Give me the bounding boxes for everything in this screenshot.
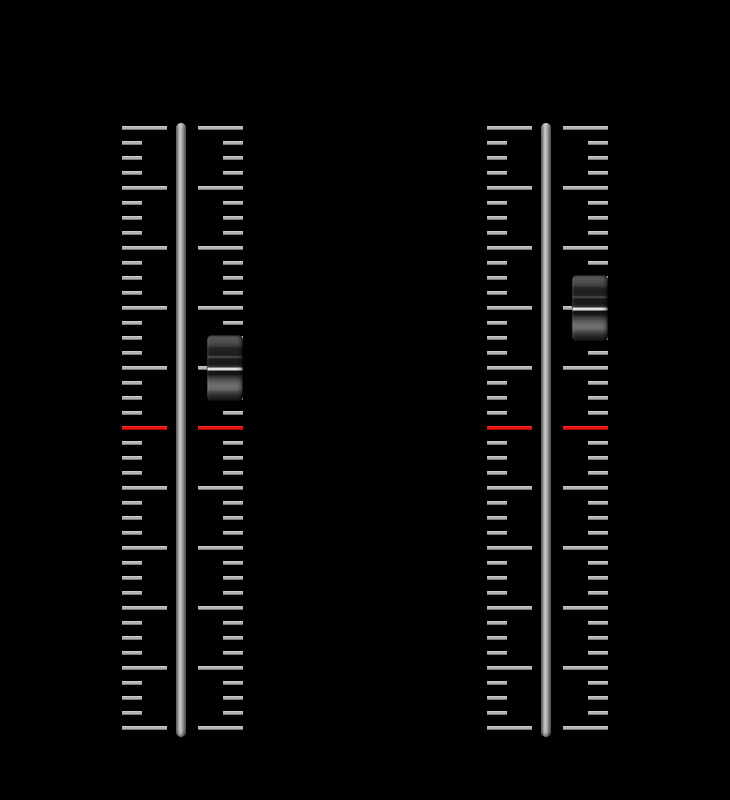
minor-tick (122, 261, 142, 265)
major-tick (122, 306, 167, 310)
major-tick (122, 486, 167, 490)
minor-tick (487, 411, 507, 415)
minor-tick (223, 696, 243, 700)
major-tick (122, 186, 167, 190)
minor-tick (223, 471, 243, 475)
minor-tick (223, 501, 243, 505)
minor-tick (223, 231, 243, 235)
minor-tick (487, 681, 507, 685)
minor-tick (223, 621, 243, 625)
minor-tick (588, 711, 608, 715)
minor-tick (122, 501, 142, 505)
red-tick (198, 426, 243, 430)
minor-tick (223, 261, 243, 265)
minor-tick (588, 156, 608, 160)
minor-tick (588, 696, 608, 700)
minor-tick (588, 216, 608, 220)
minor-tick (487, 531, 507, 535)
minor-tick (487, 141, 507, 145)
minor-tick (588, 516, 608, 520)
minor-tick (487, 171, 507, 175)
minor-tick (122, 381, 142, 385)
minor-tick (122, 711, 142, 715)
major-tick (122, 726, 167, 730)
major-tick (563, 486, 608, 490)
minor-tick (487, 351, 507, 355)
major-tick (198, 486, 243, 490)
minor-tick (487, 651, 507, 655)
major-tick (487, 306, 532, 310)
minor-tick (588, 636, 608, 640)
minor-tick (122, 696, 142, 700)
minor-tick (122, 291, 142, 295)
minor-tick (223, 171, 243, 175)
minor-tick (588, 411, 608, 415)
minor-tick (588, 561, 608, 565)
minor-tick (487, 291, 507, 295)
minor-tick (223, 441, 243, 445)
red-tick (122, 426, 167, 430)
minor-tick (223, 141, 243, 145)
slider-track[interactable] (176, 123, 186, 737)
minor-tick (122, 651, 142, 655)
minor-tick (223, 276, 243, 280)
minor-tick (122, 576, 142, 580)
major-tick (122, 126, 167, 130)
major-tick (563, 366, 608, 370)
minor-tick (588, 681, 608, 685)
tick-scale-left (122, 126, 167, 730)
major-tick (563, 546, 608, 550)
major-tick (198, 726, 243, 730)
minor-tick (588, 171, 608, 175)
major-tick (122, 606, 167, 610)
major-tick (487, 366, 532, 370)
major-tick (563, 666, 608, 670)
minor-tick (487, 156, 507, 160)
minor-tick (223, 651, 243, 655)
minor-tick (223, 591, 243, 595)
minor-tick (588, 261, 608, 265)
minor-tick (487, 711, 507, 715)
minor-tick (223, 561, 243, 565)
minor-tick (223, 681, 243, 685)
major-tick (122, 546, 167, 550)
red-tick (563, 426, 608, 430)
major-tick (198, 186, 243, 190)
minor-tick (487, 471, 507, 475)
major-tick (198, 126, 243, 130)
major-tick (487, 186, 532, 190)
minor-tick (487, 276, 507, 280)
major-tick (563, 726, 608, 730)
minor-tick (487, 636, 507, 640)
minor-tick (588, 651, 608, 655)
minor-tick (487, 441, 507, 445)
minor-tick (487, 201, 507, 205)
minor-tick (122, 411, 142, 415)
major-tick (487, 546, 532, 550)
major-tick (563, 186, 608, 190)
minor-tick (588, 351, 608, 355)
minor-tick (122, 591, 142, 595)
minor-tick (487, 261, 507, 265)
minor-tick (487, 516, 507, 520)
minor-tick (122, 321, 142, 325)
minor-tick (588, 591, 608, 595)
major-tick (487, 126, 532, 130)
slider-thumb[interactable] (572, 275, 608, 341)
minor-tick (122, 636, 142, 640)
minor-tick (223, 636, 243, 640)
minor-tick (487, 696, 507, 700)
major-tick (122, 666, 167, 670)
major-tick (563, 246, 608, 250)
fader-right (487, 0, 608, 800)
minor-tick (487, 456, 507, 460)
minor-tick (223, 321, 243, 325)
minor-tick (223, 291, 243, 295)
tick-scale-left (487, 126, 532, 730)
tick-scale-right (563, 126, 608, 730)
minor-tick (122, 201, 142, 205)
minor-tick (122, 231, 142, 235)
minor-tick (122, 561, 142, 565)
major-tick (487, 486, 532, 490)
minor-tick (122, 516, 142, 520)
minor-tick (223, 216, 243, 220)
minor-tick (223, 516, 243, 520)
minor-tick (588, 231, 608, 235)
minor-tick (122, 141, 142, 145)
minor-tick (588, 621, 608, 625)
minor-tick (223, 576, 243, 580)
minor-tick (588, 471, 608, 475)
major-tick (563, 126, 608, 130)
minor-tick (122, 681, 142, 685)
minor-tick (588, 381, 608, 385)
slider-thumb[interactable] (207, 335, 243, 401)
minor-tick (122, 276, 142, 280)
minor-tick (487, 231, 507, 235)
minor-tick (122, 171, 142, 175)
minor-tick (122, 531, 142, 535)
major-tick (487, 246, 532, 250)
red-tick (487, 426, 532, 430)
major-tick (198, 606, 243, 610)
minor-tick (487, 321, 507, 325)
major-tick (563, 606, 608, 610)
minor-tick (122, 156, 142, 160)
minor-tick (588, 141, 608, 145)
major-tick (487, 606, 532, 610)
minor-tick (588, 531, 608, 535)
minor-tick (487, 396, 507, 400)
major-tick (122, 246, 167, 250)
minor-tick (487, 591, 507, 595)
minor-tick (122, 351, 142, 355)
major-tick (198, 546, 243, 550)
major-tick (198, 306, 243, 310)
minor-tick (122, 216, 142, 220)
minor-tick (223, 711, 243, 715)
minor-tick (487, 576, 507, 580)
minor-tick (122, 336, 142, 340)
major-tick (487, 726, 532, 730)
major-tick (487, 666, 532, 670)
minor-tick (122, 471, 142, 475)
minor-tick (122, 441, 142, 445)
minor-tick (122, 456, 142, 460)
major-tick (198, 666, 243, 670)
minor-tick (487, 381, 507, 385)
minor-tick (588, 201, 608, 205)
minor-tick (223, 411, 243, 415)
major-tick (198, 246, 243, 250)
minor-tick (487, 501, 507, 505)
minor-tick (588, 441, 608, 445)
minor-tick (588, 501, 608, 505)
minor-tick (223, 201, 243, 205)
minor-tick (223, 531, 243, 535)
minor-tick (223, 456, 243, 460)
minor-tick (487, 336, 507, 340)
fader-left (122, 0, 243, 800)
fader-panel (0, 0, 730, 800)
minor-tick (122, 396, 142, 400)
minor-tick (487, 561, 507, 565)
minor-tick (487, 621, 507, 625)
minor-tick (223, 156, 243, 160)
minor-tick (588, 456, 608, 460)
minor-tick (588, 576, 608, 580)
minor-tick (487, 216, 507, 220)
minor-tick (122, 621, 142, 625)
minor-tick (588, 396, 608, 400)
slider-track[interactable] (541, 123, 551, 737)
major-tick (122, 366, 167, 370)
tick-scale-right (198, 126, 243, 730)
